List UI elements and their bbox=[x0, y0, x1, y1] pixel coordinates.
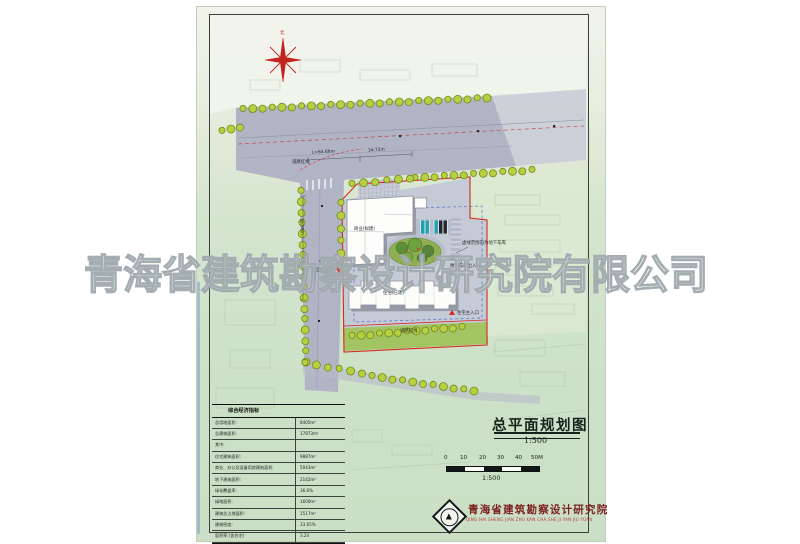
table-row: 总用地面积:8405m² bbox=[212, 418, 345, 429]
scalebar-tick-0: 0 bbox=[444, 455, 448, 461]
table-row: 容积率:(含住宅)3.24 bbox=[212, 531, 345, 542]
table-row-value: 17873m² bbox=[295, 429, 345, 439]
road-redline-label-top: 道路红线 bbox=[292, 161, 310, 166]
scalebar-tick-50: 50M bbox=[531, 455, 543, 461]
table-row-value: 3.24 bbox=[295, 531, 345, 541]
road-redline-label-bottom: 道路红线 bbox=[400, 330, 418, 335]
table-row-label: 建筑总占地面积: bbox=[212, 509, 295, 519]
residential-entry-label: 住宅主入口 bbox=[457, 312, 479, 317]
scalebar-caption: 1:500 bbox=[482, 474, 500, 482]
dim-top-label: 34.72m bbox=[368, 149, 385, 155]
title-scale: 1:500 bbox=[524, 436, 547, 445]
table-row-label: 总建筑面积: bbox=[212, 429, 295, 439]
table-row: 绿地面积:1600m² bbox=[212, 497, 345, 508]
table-row-label: 容积率:(含住宅) bbox=[212, 531, 295, 541]
building-proposed-label: 商业(拟建) bbox=[354, 228, 375, 233]
table-row: 总建筑面积:17873m² bbox=[212, 429, 345, 440]
scalebar-tick-20: 20 bbox=[479, 455, 486, 461]
table-row-label: 住宅建筑面积: bbox=[212, 452, 295, 462]
scalebar bbox=[446, 466, 540, 472]
table-row: 建筑总占地面积:1517m² bbox=[212, 509, 345, 520]
table-row-label: 其中: bbox=[212, 440, 295, 450]
table-row: 建筑密度:33.65% bbox=[212, 520, 345, 531]
table-row-value bbox=[295, 440, 345, 450]
table-row-label: 地下建筑面积: bbox=[212, 474, 295, 484]
scanned-site-plan-page: 道路红线 L=64.66m 34.72m 30.98m 商业(拟建) 住宅(已建… bbox=[0, 0, 800, 544]
watermark-text: 青海省建筑勘察设计研究院有限公司 bbox=[84, 243, 716, 299]
table-row: 其中: bbox=[212, 440, 345, 451]
table-row-value: 5043m² bbox=[295, 463, 345, 473]
table-row: 绿化覆盖率:36.6% bbox=[212, 486, 345, 497]
table-row-value: 33.65% bbox=[295, 520, 345, 530]
table-row-label: 总用地面积: bbox=[212, 418, 295, 428]
compass-north-label: 北 bbox=[280, 32, 284, 37]
table-row-value: 36.6% bbox=[295, 486, 345, 496]
dim-left-road-label: 30.98m bbox=[297, 218, 303, 235]
table-row-label: 绿地面积: bbox=[212, 497, 295, 507]
institute-pinyin: QING HAI SHENG JIAN ZHU KAN CHA SHE JI Y… bbox=[466, 517, 593, 522]
table-row-value: 1517m² bbox=[295, 509, 345, 519]
scalebar-tick-30: 30 bbox=[497, 455, 504, 461]
scalebar-tick-10: 10 bbox=[460, 455, 467, 461]
table-row-value: 2142m² bbox=[295, 474, 345, 484]
table-row-label: 商业、办公及设备用房建筑面积: bbox=[212, 463, 295, 473]
table-row-value: 8405m² bbox=[295, 418, 345, 428]
table-row-value: 1600m² bbox=[295, 497, 345, 507]
table-row: 地下建筑面积:2142m² bbox=[212, 474, 345, 485]
table-row-value: 9887m² bbox=[295, 452, 345, 462]
table-row: 住宅建筑面积:9887m² bbox=[212, 452, 345, 463]
table-row: 商业、办公及设备用房建筑面积:5043m² bbox=[212, 463, 345, 474]
economic-indicators-table: 综合经济指标 总用地面积:8405m²总建筑面积:17873m²其中:住宅建筑面… bbox=[212, 404, 345, 544]
table-header: 综合经济指标 bbox=[212, 404, 345, 418]
table-row-label: 建筑密度: bbox=[212, 520, 295, 530]
institute-name: 青海省建筑勘察设计研究院 bbox=[468, 502, 608, 517]
scan-edge-artifact bbox=[197, 282, 200, 534]
table-row-label: 绿化覆盖率: bbox=[212, 486, 295, 496]
scalebar-tick-40: 40 bbox=[515, 455, 522, 461]
